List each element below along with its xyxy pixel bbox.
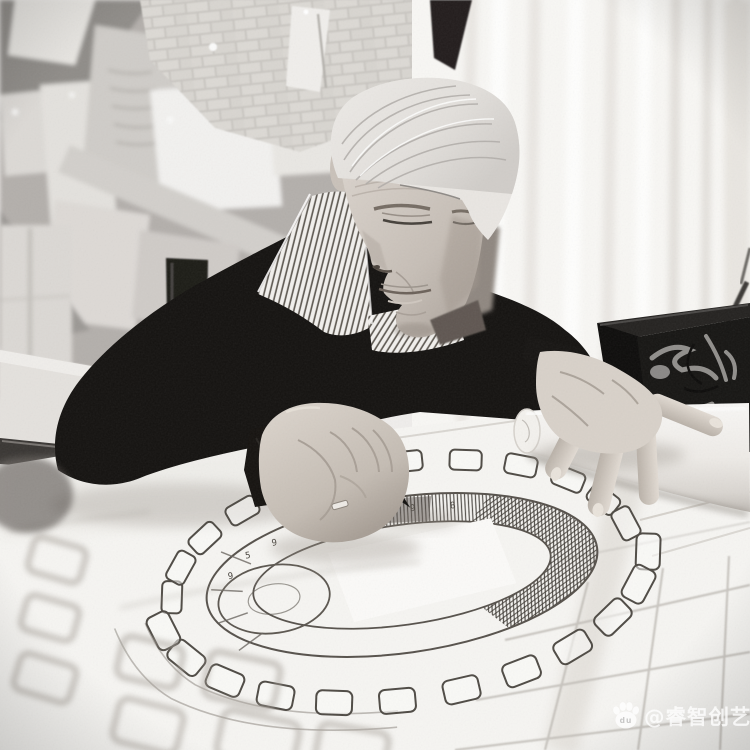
photo-designer-sketching: 9 5 9 2 9 6 9 8 6 9	[0, 0, 750, 750]
watermark-logo-text: du	[620, 716, 633, 725]
photo-canvas: 9 5 9 2 9 6 9 8 6 9	[0, 0, 750, 750]
vignette	[0, 0, 750, 750]
watermark-handle: @睿智创艺	[644, 705, 750, 729]
